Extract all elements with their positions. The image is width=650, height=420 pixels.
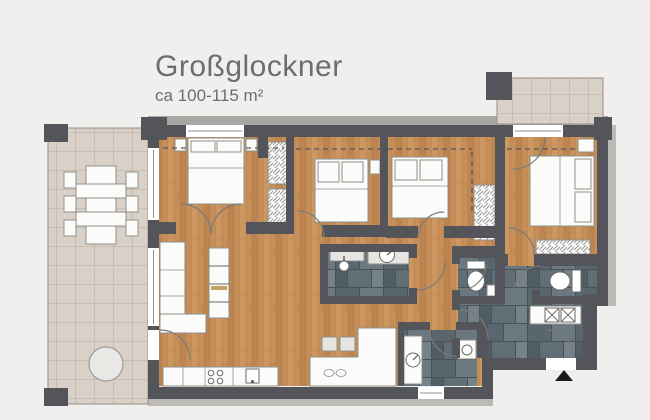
terrace: [44, 124, 148, 406]
bar-stool: [322, 337, 337, 351]
chair: [64, 172, 76, 188]
pillow: [217, 141, 241, 152]
chair: [64, 220, 76, 236]
wall-segment: [320, 244, 328, 304]
wall-segment: [409, 244, 417, 258]
nightstand: [578, 139, 594, 152]
wall-segment: [495, 258, 505, 304]
entrance-arrow-icon: [555, 370, 573, 381]
washbasin: [339, 261, 349, 271]
nightstand: [246, 139, 257, 151]
washbasin: [462, 345, 472, 355]
round-table: [89, 347, 123, 381]
chair: [126, 220, 138, 236]
wall-corner-block: [141, 117, 167, 140]
toilet: [550, 272, 570, 290]
wall-segment: [597, 125, 608, 306]
chair: [64, 196, 76, 212]
pillow: [395, 160, 417, 180]
wall-segment: [322, 225, 386, 237]
pillow: [575, 159, 591, 189]
wall-segment: [44, 388, 68, 406]
radiator: [487, 285, 495, 296]
wall-segment: [398, 322, 404, 386]
page-title: Großglockner: [155, 50, 343, 83]
entrance-door-opening: [546, 358, 576, 370]
nightstand: [370, 160, 380, 174]
pillow: [420, 160, 442, 180]
wall-segment: [486, 72, 512, 100]
chair: [126, 196, 138, 212]
shelf-items: [211, 286, 227, 290]
nightstand: [175, 139, 186, 151]
washing-machine: [561, 308, 575, 322]
faucet: [251, 380, 254, 383]
wall-segment: [159, 222, 176, 234]
wall-shadow-bottom: [148, 399, 493, 406]
bar-counter: [310, 328, 396, 386]
wall-corner-block: [594, 117, 612, 140]
toilet-tank: [572, 270, 581, 292]
wall-segment: [386, 226, 418, 238]
chair: [126, 172, 138, 188]
wall-segment: [452, 246, 505, 258]
terrace-door-opening: [148, 330, 159, 360]
floor-plan-drawing: Großglockner ca 100-115 m²: [0, 0, 650, 420]
pillow: [318, 162, 339, 182]
page-subtitle: ca 100-115 m²: [155, 86, 264, 105]
wall-segment: [534, 254, 597, 266]
dining-table: [64, 166, 138, 244]
wall-segment: [444, 226, 495, 238]
wall-segment: [380, 137, 388, 237]
wall-shadow-right: [608, 125, 616, 306]
wall-segment: [452, 304, 460, 310]
wall-segment: [495, 125, 505, 258]
wall-segment: [532, 296, 597, 304]
wall-segment: [320, 296, 417, 304]
balcony: [486, 72, 603, 124]
toilet-tank: [467, 261, 485, 269]
bar-stool: [340, 337, 355, 351]
wall-segment: [452, 338, 460, 358]
balcony-floor: [497, 78, 603, 124]
kitchen: [163, 367, 278, 386]
wall-segment: [490, 358, 594, 370]
pillow: [191, 141, 215, 152]
wall-segment: [320, 244, 417, 252]
floor-plan-page: Großglockner ca 100-115 m²: [0, 0, 650, 420]
wall-segment: [286, 137, 294, 234]
pillow: [342, 162, 363, 182]
wall-segment: [452, 258, 460, 264]
wall-segment: [44, 124, 68, 142]
washing-machine: [545, 308, 559, 322]
pillow: [575, 192, 591, 222]
shelf-unit: [209, 248, 229, 318]
